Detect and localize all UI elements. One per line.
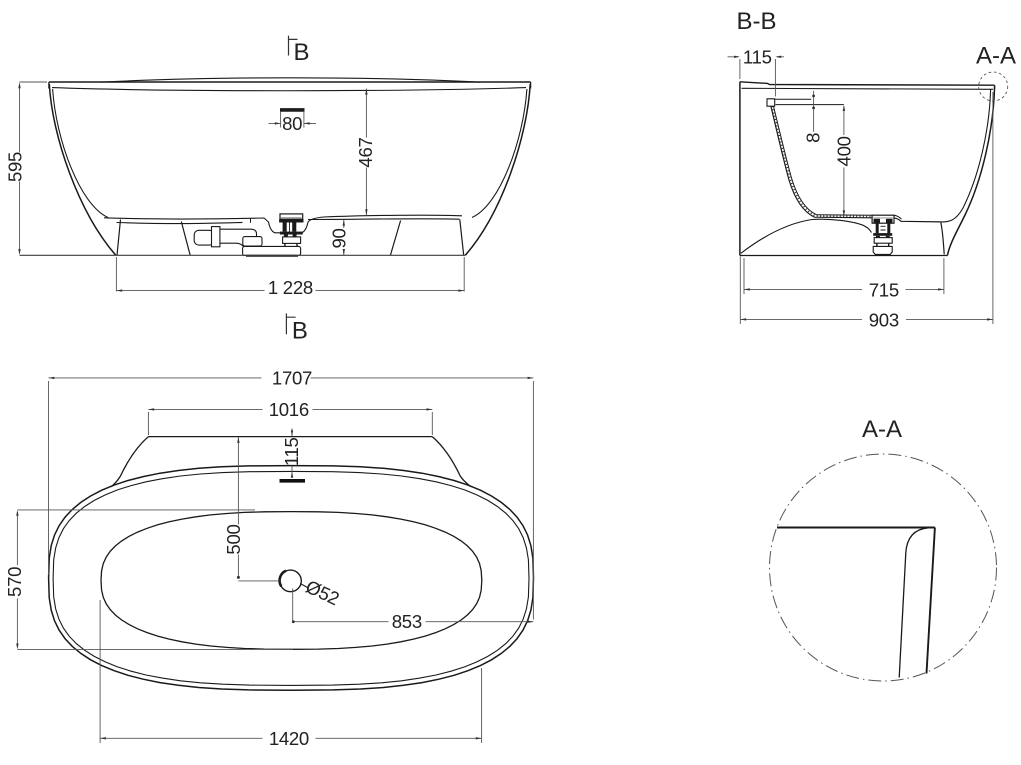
svg-text:B-B: B-B [737, 8, 777, 35]
svg-text:1016: 1016 [269, 399, 309, 420]
svg-text:500: 500 [223, 524, 244, 554]
svg-text:853: 853 [392, 611, 422, 632]
svg-text:1420: 1420 [269, 728, 309, 749]
svg-text:8: 8 [803, 133, 824, 143]
svg-text:715: 715 [869, 280, 899, 301]
svg-text:1707: 1707 [272, 368, 312, 389]
svg-text:A-A: A-A [862, 416, 902, 443]
svg-text:595: 595 [4, 152, 25, 182]
svg-text:400: 400 [834, 136, 855, 166]
svg-text:570: 570 [4, 567, 25, 597]
svg-text:A-A: A-A [976, 43, 1016, 70]
svg-text:115: 115 [281, 437, 302, 466]
svg-text:B: B [294, 39, 310, 66]
svg-text:B: B [292, 318, 308, 345]
svg-text:115: 115 [743, 47, 772, 68]
svg-text:1 228: 1 228 [268, 277, 313, 298]
svg-text:903: 903 [869, 310, 899, 331]
svg-text:80: 80 [282, 113, 302, 134]
svg-text:90: 90 [329, 228, 350, 248]
svg-text:467: 467 [355, 137, 376, 167]
svg-text:Ø52: Ø52 [303, 576, 343, 610]
